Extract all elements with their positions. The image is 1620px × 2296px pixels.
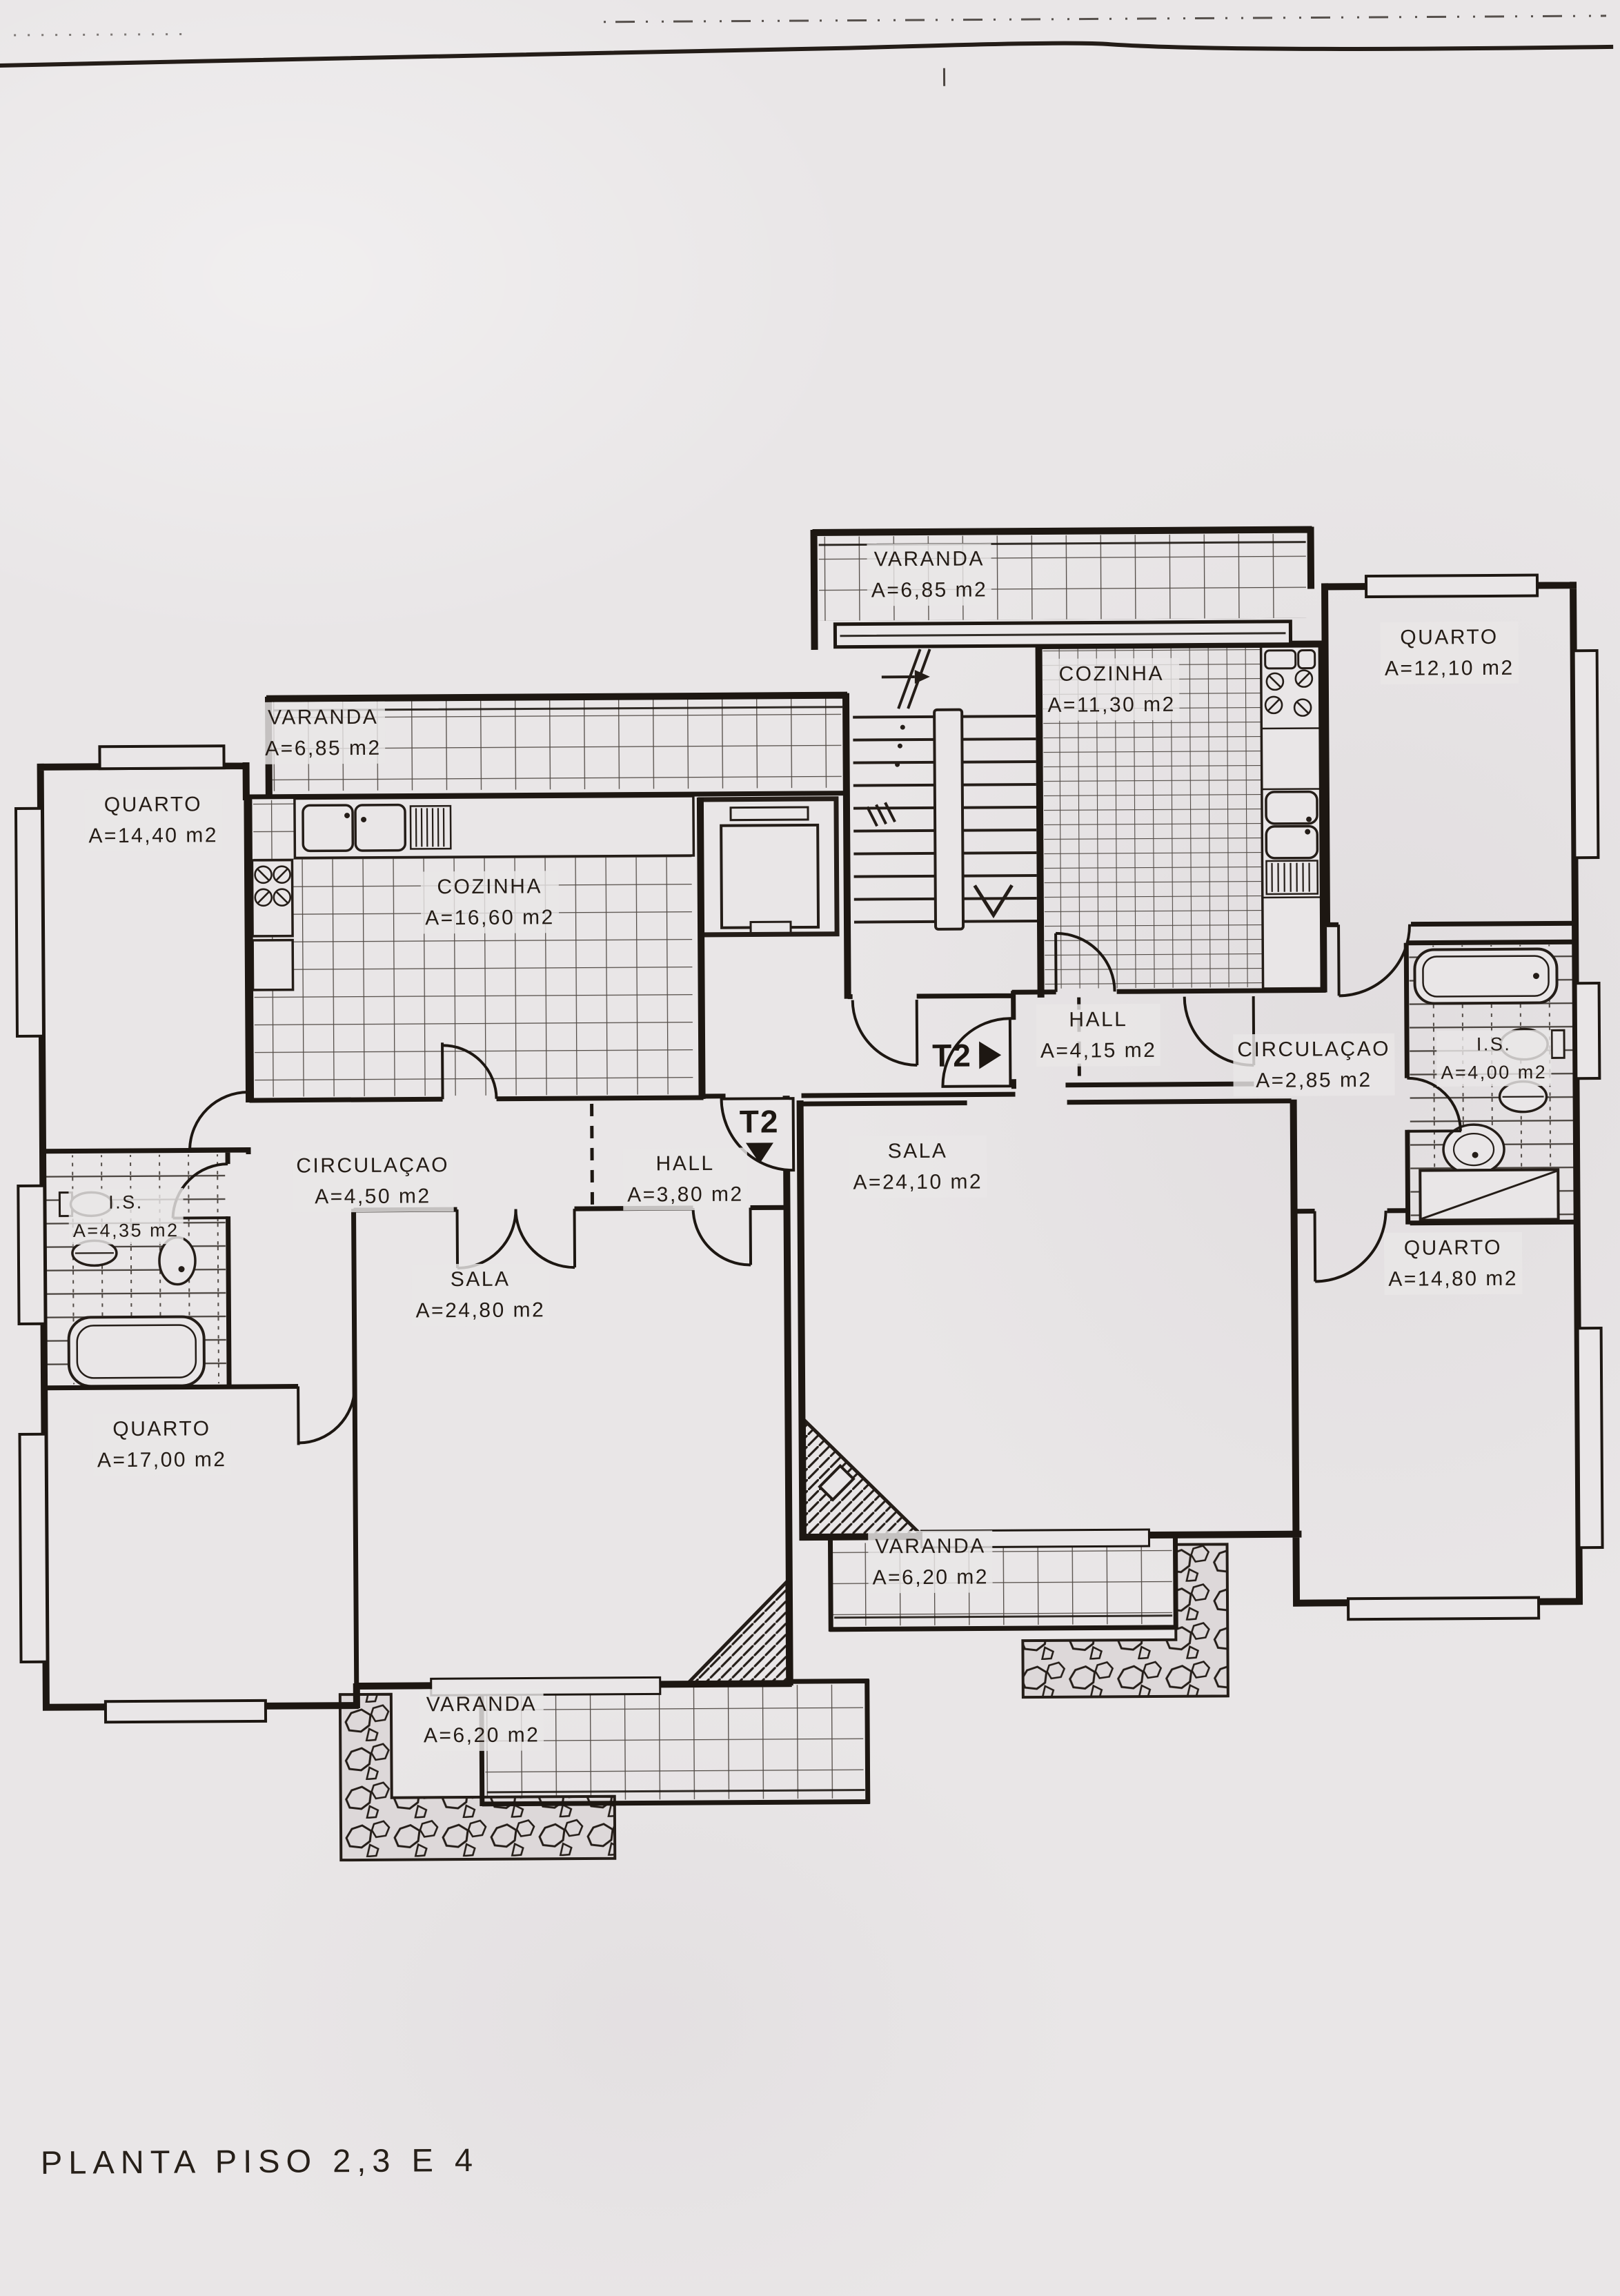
room-name: VARANDA [871, 543, 987, 575]
room-label-hall-left: HALL A=3,80 m2 [623, 1148, 748, 1211]
arrow-down-icon [746, 1142, 773, 1163]
room-name: CIRCULAÇAO [1237, 1033, 1390, 1065]
stair-down-arrow-icon [975, 885, 1012, 915]
room-label-quarto-sw: QUARTO A=17,00 m2 [93, 1413, 231, 1476]
window-icon [106, 1701, 266, 1722]
room-area: A=14,80 m2 [1388, 1263, 1518, 1295]
room-label-is-left: I.S. A=4,35 m2 [68, 1188, 183, 1245]
window-icon [1578, 1328, 1603, 1547]
room-area: A=17,00 m2 [97, 1444, 227, 1476]
door-arc-sala-left-2 [516, 1209, 575, 1268]
faucet-icon [1305, 829, 1310, 835]
sala-left-corner-hatch [688, 1581, 788, 1683]
floor-plan-drawing [0, 0, 1620, 2296]
drain-dot [1533, 973, 1539, 979]
oven-icon [253, 940, 293, 990]
toilet-tank-icon [1552, 1030, 1564, 1058]
door-arc-quarto-ne [1339, 924, 1410, 996]
room-name: QUARTO [88, 789, 218, 820]
door-arc-stair [853, 1000, 918, 1066]
room-label-circulacao-left: CIRCULAÇAO A=4,50 m2 [292, 1149, 453, 1212]
unit-marker-label: T2 [740, 1102, 780, 1140]
arrow-right-icon [979, 1041, 1001, 1069]
room-label-cozinha-right: COZINHA A=11,30 m2 [1043, 658, 1180, 721]
room-name: VARANDA [424, 1688, 540, 1720]
room-label-sala-right: SALA A=24,10 m2 [849, 1135, 987, 1198]
room-label-varanda-bottom-right: VARANDA A=6,20 m2 [868, 1530, 993, 1593]
stairs [853, 649, 1037, 930]
room-label-varanda-left: VARANDA A=6,85 m2 [261, 702, 386, 764]
stair-dot [898, 744, 902, 749]
sink-icon [355, 805, 405, 851]
elevator-vent [731, 807, 808, 820]
drain-dot [1472, 1152, 1479, 1158]
scanned-floor-plan-sheet: VARANDA A=6,85 m2 COZINHA A=11,30 m2 QUA… [0, 0, 1620, 2296]
room-area: A=6,85 m2 [871, 574, 988, 606]
window-icon [1348, 1598, 1539, 1620]
door-arc-quarto-nw [189, 1092, 248, 1149]
room-name: COZINHA [1047, 658, 1176, 690]
faucet-icon [344, 813, 350, 818]
stair-dot [895, 762, 900, 767]
room-area: A=11,30 m2 [1047, 689, 1176, 721]
sink-icon [303, 805, 353, 851]
room-area: A=3,80 m2 [627, 1179, 744, 1211]
room-area: A=24,80 m2 [415, 1294, 545, 1326]
room-area: A=6,85 m2 [265, 733, 382, 764]
room-label-cozinha-left: COZINHA A=16,60 m2 [421, 871, 559, 933]
room-name: QUARTO [1388, 1232, 1518, 1264]
sheet-title: PLANTA PISO 2,3 E 4 [41, 2141, 479, 2181]
room-label-hall-right: HALL A=4,15 m2 [1036, 1004, 1161, 1067]
room-name: HALL [627, 1148, 744, 1180]
unit-marker-t2-right: T2 [932, 1036, 1001, 1074]
room-label-quarto-e: QUARTO A=14,80 m2 [1384, 1232, 1522, 1295]
floor-plan: VARANDA A=6,85 m2 COZINHA A=11,30 m2 QUA… [0, 0, 1620, 2296]
room-name: SALA [415, 1263, 545, 1295]
room-name: I.S. [1441, 1030, 1547, 1058]
scan-artifacts [0, 16, 1614, 92]
paper-edge-line [0, 40, 1613, 66]
room-label-varanda-bottom-left: VARANDA A=6,20 m2 [419, 1688, 544, 1751]
room-label-quarto-nw: QUARTO A=14,40 m2 [84, 789, 222, 851]
stair-break-line [898, 649, 931, 709]
faucet-icon [361, 817, 366, 822]
door-arc-quarto-sw [298, 1386, 355, 1445]
room-area: A=16,60 m2 [425, 902, 555, 933]
washbasin-icon [159, 1237, 195, 1284]
room-area: A=2,85 m2 [1237, 1065, 1390, 1096]
room-label-is-right: I.S. A=4,00 m2 [1436, 1030, 1551, 1087]
room-area: A=4,15 m2 [1040, 1035, 1157, 1067]
drain-dot [179, 1266, 185, 1272]
unit-marker-t2-down: T2 [740, 1102, 780, 1163]
room-name: QUARTO [97, 1413, 227, 1445]
room-area: A=4,35 m2 [73, 1216, 179, 1245]
stair-stringer [934, 710, 963, 929]
room-area: A=6,20 m2 [424, 1719, 540, 1751]
faucet-icon [1306, 817, 1312, 822]
room-area: A=12,10 m2 [1385, 653, 1514, 684]
elevator [700, 799, 837, 935]
drainboard-lines [1272, 863, 1309, 892]
room-name: HALL [1040, 1004, 1157, 1036]
window-icon [18, 1186, 45, 1324]
room-area: A=4,00 m2 [1441, 1058, 1547, 1086]
counter-divider [1263, 897, 1321, 898]
elevator-door [751, 922, 791, 933]
room-label-circulacao-right: CIRCULAÇAO A=2,85 m2 [1233, 1033, 1394, 1096]
window-icon [16, 809, 43, 1036]
appliance-icon [1298, 651, 1315, 669]
room-name: VARANDA [872, 1530, 989, 1562]
room-name: VARANDA [265, 702, 382, 733]
appliance-icon [1265, 651, 1296, 669]
room-label-sala-left: SALA A=24,80 m2 [411, 1263, 549, 1326]
room-name: COZINHA [425, 871, 555, 902]
door-arc-sala-left-1 [457, 1209, 517, 1269]
unit-marker-label: T2 [932, 1037, 972, 1074]
room-area: A=6,20 m2 [872, 1561, 989, 1593]
room-label-quarto-ne: QUARTO A=12,10 m2 [1381, 622, 1519, 684]
window-icon [20, 1434, 48, 1662]
sala-right-corner-hatch [804, 1419, 921, 1536]
elevator-car [721, 825, 818, 928]
door-arc-quarto-e [1315, 1211, 1387, 1282]
room-area: A=24,10 m2 [853, 1166, 982, 1198]
scan-dash-line [604, 16, 1606, 22]
room-area: A=14,40 m2 [88, 820, 218, 851]
scan-dash-line-left [14, 34, 183, 35]
window-icon [1576, 983, 1600, 1078]
room-area: A=4,50 m2 [296, 1180, 449, 1212]
door-arc-hall-left [693, 1208, 751, 1266]
room-name: CIRCULAÇAO [296, 1149, 449, 1181]
room-name: I.S. [72, 1188, 179, 1216]
kitchen-fixtures-right [1261, 645, 1322, 989]
room-label-varanda-top: VARANDA A=6,85 m2 [867, 543, 991, 606]
window-icon [99, 746, 224, 769]
window-icon [1366, 575, 1537, 597]
stair-dot [900, 725, 905, 730]
room-name: QUARTO [1385, 622, 1514, 653]
window-icon [1574, 651, 1599, 858]
room-name: SALA [853, 1135, 982, 1167]
stair-tick-marks [867, 802, 895, 826]
